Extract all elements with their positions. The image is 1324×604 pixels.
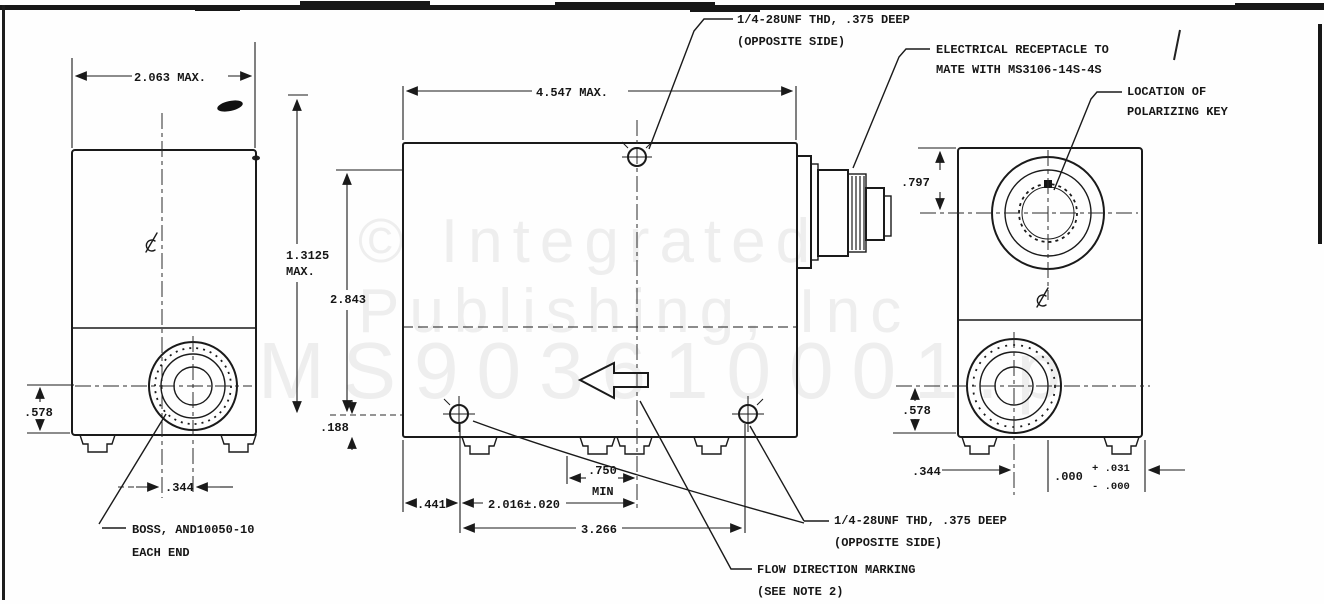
callout-flow: FLOW DIRECTION MARKING (SEE NOTE 2)	[640, 401, 915, 599]
dim-left-width: 2.063 MAX.	[72, 42, 255, 148]
dim-label: - .000	[1092, 481, 1130, 493]
callout-text: (OPPOSITE SIDE)	[737, 35, 845, 49]
callout-text: EACH END	[132, 546, 190, 560]
dim-label: 3.266	[581, 523, 617, 537]
scan-smudge	[216, 98, 244, 113]
dim-label: MAX.	[286, 265, 315, 279]
dim-label: .797	[901, 176, 930, 190]
boss-port	[75, 336, 252, 492]
leader-line	[99, 414, 166, 524]
dim-0344-left: .344	[118, 481, 233, 495]
callout-text: BOSS, AND10050-10	[132, 523, 254, 537]
front-view-foot	[617, 437, 652, 454]
dim-label: 2.843	[330, 293, 366, 307]
dim-label: 4.547 MAX.	[536, 86, 608, 100]
scan-mark	[1174, 30, 1180, 60]
leader-line	[750, 426, 804, 521]
dim-0344-right: .344	[912, 440, 1048, 492]
callout-text: LOCATION OF	[1127, 85, 1206, 99]
dim-label: 2.063 MAX.	[134, 71, 206, 85]
right-end-view	[896, 148, 1150, 495]
callout-text: 1/4-28UNF THD, .375 DEEP	[737, 13, 910, 27]
callout-text: 1/4-28UNF THD, .375 DEEP	[834, 514, 1007, 528]
receptacle-face	[920, 150, 1138, 300]
dim-front-width: 4.547 MAX.	[403, 86, 796, 140]
scanned-drawing-page: © Integrated Publishing, Inc MS903610001…	[0, 0, 1324, 604]
dim-label: .578	[24, 406, 53, 420]
dim-label: 1.3125	[286, 249, 329, 263]
front-view-foot	[694, 437, 729, 454]
watermark-line3: MS903610001.p	[258, 326, 1079, 415]
dim-0578-left: .578	[24, 385, 74, 433]
dim-label: + .031	[1092, 463, 1130, 475]
leader-line	[649, 19, 733, 149]
callout-text: (SEE NOTE 2)	[757, 585, 843, 599]
technical-drawing-ms90361: © Integrated Publishing, Inc MS903610001…	[0, 0, 1324, 604]
callout-text: MATE WITH MS3106-14S-4S	[936, 63, 1102, 77]
callout-text: ELECTRICAL RECEPTACLE TO	[936, 43, 1109, 57]
right-view-foot	[962, 437, 997, 454]
centerline-symbol	[146, 233, 157, 252]
watermark: © Integrated Publishing, Inc MS903610001…	[258, 207, 1079, 415]
dim-tolerance: .000 + .031 - .000	[1054, 440, 1185, 493]
dim-label: 2.016±.020	[488, 498, 560, 512]
callout-text: (OPPOSITE SIDE)	[834, 536, 942, 550]
left-view-foot	[80, 435, 115, 452]
callout-text: FLOW DIRECTION MARKING	[757, 563, 915, 577]
left-view-foot	[221, 435, 256, 452]
dim-label: .188	[320, 421, 349, 435]
dim-0750: .750 MIN	[567, 456, 634, 499]
dim-label: .750	[588, 464, 617, 478]
front-view-foot	[580, 437, 615, 454]
right-view-foot	[1104, 437, 1139, 454]
dim-label: .441	[417, 498, 446, 512]
dim-label: .000	[1054, 470, 1083, 484]
callout-text: POLARIZING KEY	[1127, 105, 1229, 119]
leader-line	[853, 49, 930, 168]
dim-label: MIN	[592, 485, 614, 499]
dim-label: .578	[902, 404, 931, 418]
dim-label: .344	[165, 481, 194, 495]
dim-label: .344	[912, 465, 941, 479]
left-end-view	[72, 113, 256, 498]
callout-thd-bottom: 1/4-28UNF THD, .375 DEEP (OPPOSITE SIDE)	[473, 421, 1007, 550]
left-view-body	[72, 150, 256, 435]
centerline-symbol	[1037, 288, 1048, 307]
dim-0797: .797	[901, 148, 956, 209]
watermark-line1: © Integrated	[358, 207, 820, 276]
electrical-connector-profile	[797, 156, 891, 268]
callout-thd-top: 1/4-28UNF THD, .375 DEEP (OPPOSITE SIDE)	[649, 13, 910, 149]
dim-3266: 3.266	[464, 523, 741, 537]
dim-0441: .441	[406, 498, 457, 512]
front-view-foot	[462, 437, 497, 454]
leader-line	[640, 401, 752, 569]
leader-line	[1054, 92, 1122, 190]
